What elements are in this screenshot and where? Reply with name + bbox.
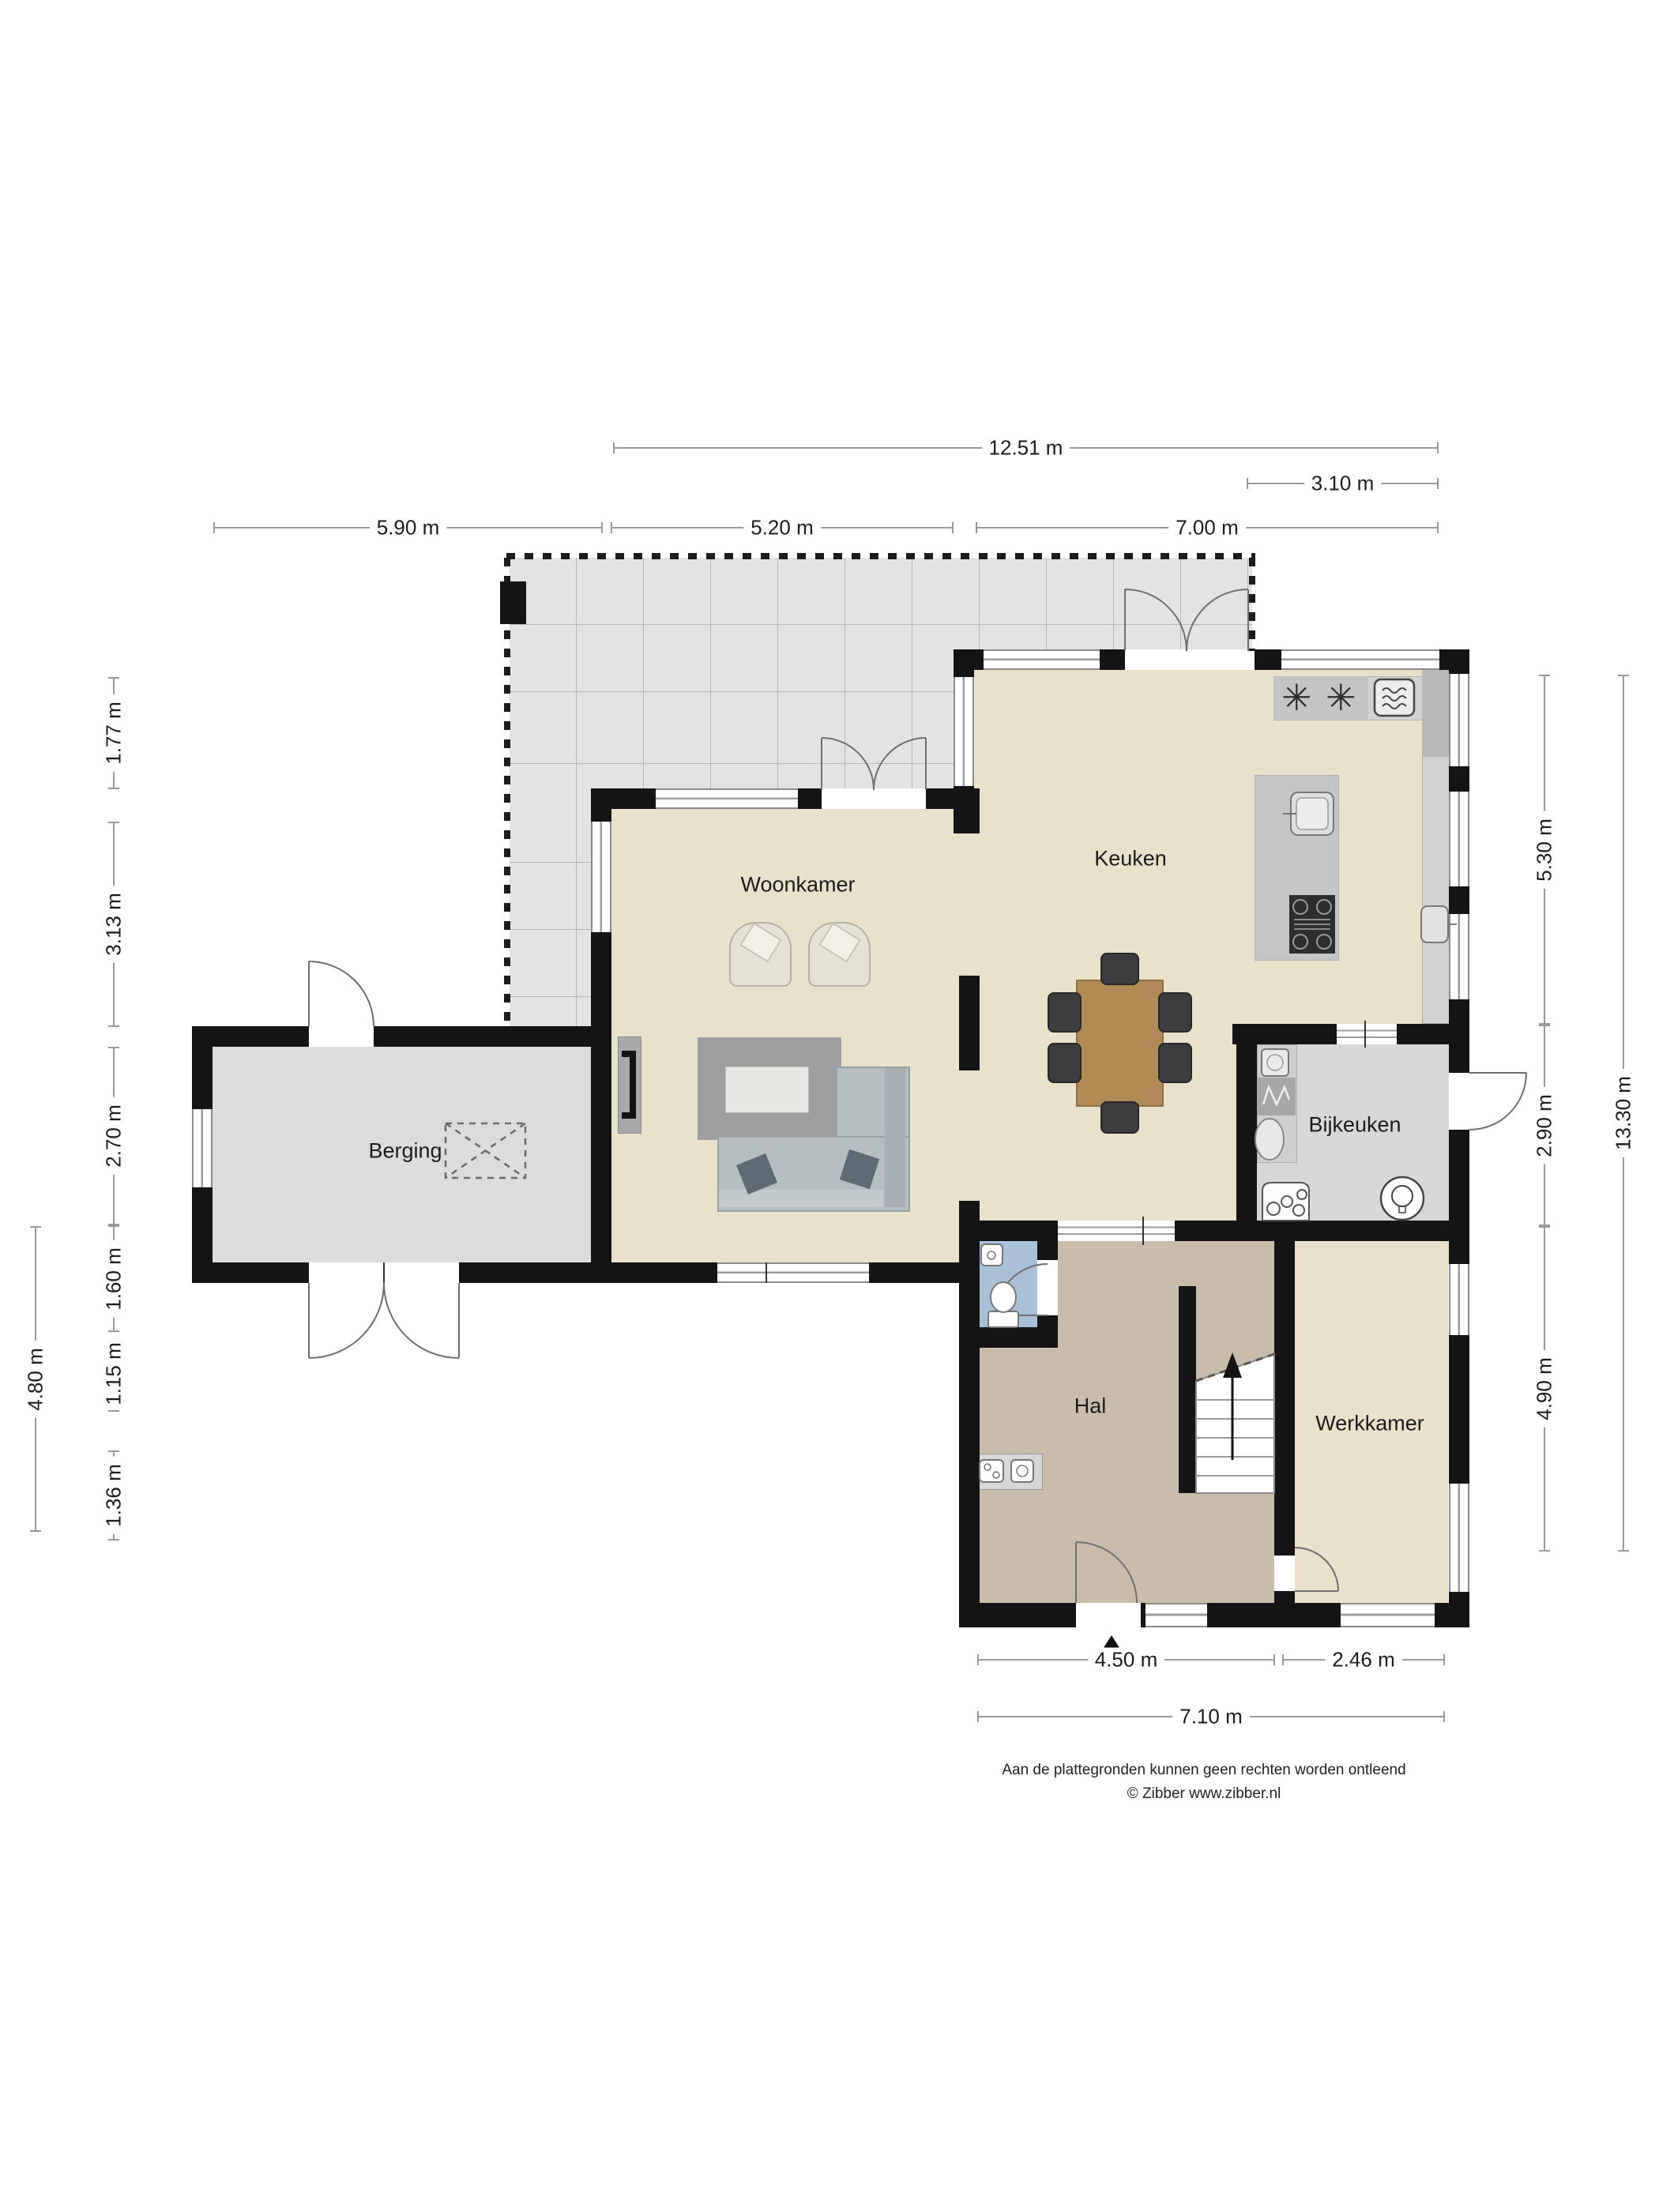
dimension-label: 2.46 m — [1325, 1648, 1402, 1672]
kitchen-sink — [1283, 792, 1334, 835]
room-label-hal: Hal — [1074, 1394, 1107, 1419]
dimension-label: 4.50 m — [1088, 1648, 1165, 1672]
kitchen-sink — [1421, 906, 1457, 942]
dimension-label: 1.36 m — [102, 1457, 126, 1534]
dimension-top-seg2: 5.20 m — [611, 527, 954, 529]
dimension-right-seg1: 5.30 m — [1544, 675, 1545, 1025]
dimension-label: 13.30 m — [1612, 1069, 1636, 1157]
utility-oval-sink — [1255, 1119, 1284, 1160]
vanity-basin-icon — [980, 1460, 1033, 1482]
door-arc — [1295, 1548, 1338, 1591]
dimension-label: 12.51 m — [982, 436, 1070, 461]
dimension-bottom-seg2: 2.46 m — [1282, 1659, 1445, 1661]
copyright-line: © Zibber www.zibber.nl — [1002, 1782, 1405, 1806]
dimension-left-seg3: 2.70 m — [113, 1047, 115, 1225]
dimension-right-outer: 13.30 m — [1623, 675, 1624, 1552]
door-arc — [309, 961, 374, 1026]
dimension-bottom-seg1: 4.50 m — [977, 1659, 1275, 1661]
dimension-label: 7.10 m — [1172, 1705, 1250, 1729]
dimension-top-seg3: 7.00 m — [976, 527, 1439, 529]
dimension-left-seg6: 1.36 m — [113, 1450, 115, 1540]
dimension-top-total: 12.51 m — [613, 447, 1439, 449]
dimension-left-seg4: 1.60 m — [113, 1225, 115, 1332]
skylight-dashed-box — [446, 1123, 525, 1178]
dimension-label: 1.77 m — [102, 694, 126, 772]
door-arc — [384, 1283, 459, 1358]
disclaimer-line: Aan de plattegronden kunnen geen rechten… — [1002, 1759, 1405, 1782]
dimension-label: 7.00 m — [1168, 516, 1246, 540]
floorplan-canvas: ✳ ✳ — [0, 0, 1659, 2212]
dimension-right-seg3: 4.90 m — [1544, 1226, 1545, 1552]
door-arc — [1469, 1073, 1526, 1130]
dimension-label: 1.15 m — [102, 1335, 126, 1413]
dimension-left-seg5: 1.15 m — [113, 1335, 115, 1412]
toilet-icon — [988, 1282, 1018, 1327]
plan-detail-overlay — [0, 0, 1659, 2212]
door-arc — [874, 738, 926, 790]
dimension-label: 3.10 m — [1304, 472, 1382, 496]
door-arc — [1076, 1542, 1137, 1603]
room-label-bijkeuken: Bijkeuken — [1308, 1113, 1401, 1138]
dimension-label: 3.13 m — [102, 886, 126, 963]
boiler-icon — [1381, 1177, 1424, 1220]
washing-machine-icon — [1262, 1183, 1309, 1221]
door-arc — [1187, 589, 1248, 651]
stair-arrow-head-icon — [1223, 1352, 1242, 1378]
room-label-berging: Berging — [368, 1139, 442, 1164]
dimension-left-seg2: 3.13 m — [113, 822, 115, 1027]
dimension-label: 4.80 m — [24, 1341, 48, 1418]
dimension-label: 2.90 m — [1533, 1087, 1557, 1164]
room-label-keuken: Keuken — [1094, 847, 1167, 871]
dimension-label: 2.70 m — [102, 1097, 126, 1175]
dimension-bottom-outer: 7.10 m — [977, 1716, 1445, 1717]
island-hob-icon — [1289, 895, 1335, 954]
door-arc — [1125, 589, 1187, 651]
dimension-label: 4.90 m — [1533, 1350, 1557, 1428]
dimension-top-right: 3.10 m — [1247, 483, 1439, 484]
toilet-sink-icon — [981, 1244, 1003, 1266]
door-arc — [309, 1283, 384, 1358]
dimension-label: 1.60 m — [102, 1240, 126, 1318]
room-label-woonkamer: Woonkamer — [740, 873, 855, 897]
tv-bracket — [622, 1051, 636, 1119]
room-label-werkkamer: Werkkamer — [1315, 1412, 1424, 1436]
dimension-left-outer: 4.80 m — [35, 1226, 36, 1532]
utility-sink — [1262, 1049, 1288, 1076]
dimension-top-seg1: 5.90 m — [213, 527, 603, 529]
oven-icon — [1375, 679, 1414, 716]
disclaimer-footer: Aan de plattegronden kunnen geen rechten… — [1002, 1759, 1405, 1806]
laundry-basket-icon — [1263, 1087, 1289, 1104]
dimension-label: 5.90 m — [370, 516, 447, 540]
dimension-right-seg2: 2.90 m — [1544, 1025, 1545, 1226]
door-arc — [822, 738, 874, 790]
dimension-label: 5.20 m — [743, 516, 821, 540]
dimension-left-seg1: 1.77 m — [113, 677, 115, 789]
dimension-label: 5.30 m — [1533, 811, 1557, 889]
